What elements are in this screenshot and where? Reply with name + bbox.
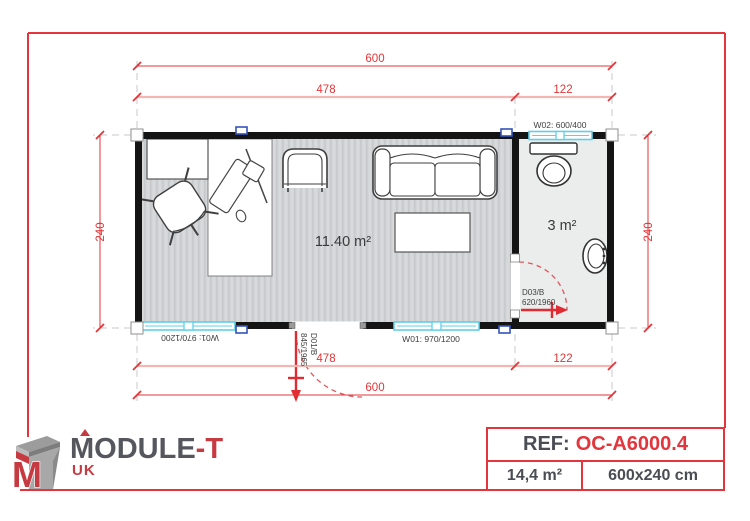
door-d03-jamb-top [511, 254, 520, 262]
partition-wall-upper [512, 132, 519, 262]
ref-label: REF: [523, 433, 570, 456]
unit-dimensions: 600x240 cm [583, 462, 723, 489]
brand-suffix: -T [196, 433, 223, 465]
door-d01-label: D01/B 845/1965 [299, 333, 318, 367]
door-d01-jamb-right [360, 323, 366, 329]
window-w01-right [394, 322, 479, 330]
door-d01-opening [292, 322, 363, 330]
brand-main: MODULE [70, 433, 196, 465]
armchair [283, 149, 327, 192]
door-d03-jamb-bottom [511, 310, 520, 318]
marker-bottom-right [499, 326, 510, 333]
left-wall [135, 132, 142, 329]
window-w01-left [142, 322, 235, 330]
dim-top-total: 600 [365, 53, 384, 65]
room-label-bathroom: 3 m² [548, 218, 577, 234]
door-d03-code: D03/B [522, 288, 544, 297]
window-w02 [529, 132, 592, 140]
door-d01-size: 845/1965 [299, 333, 308, 367]
dim-top-left: 478 [316, 84, 335, 96]
marker-top-right [501, 129, 512, 136]
right-wall [607, 132, 614, 329]
total-area: 14,4 m² [488, 462, 583, 489]
window-w01-right-label: W01: 970/1200 [402, 334, 460, 344]
door-d01-jamb-left [289, 323, 295, 329]
ref-row: REF: OC-A6000.4 [488, 429, 723, 460]
logo-chevron-icon [80, 429, 90, 436]
cabinet [147, 139, 208, 179]
door-d03-size: 620/1960 [522, 298, 556, 307]
spec-row: 14,4 m² 600x240 cm [488, 460, 723, 489]
room-label-office: 11.40 m² [315, 234, 371, 250]
window-w01-left-label: W01: 970/1200 [161, 333, 219, 343]
module-t-logo: M MODULE-T UK [12, 433, 223, 491]
door-d03-opening [511, 262, 520, 310]
dim-left-height: 240 [95, 222, 107, 241]
module-t-mark-icon: M [12, 433, 64, 491]
svg-text:M: M [12, 454, 42, 491]
ref-value: OC-A6000.4 [576, 433, 688, 456]
dim-right-height: 240 [643, 222, 655, 241]
dim-bottom-right: 122 [553, 353, 572, 365]
sink-icon [583, 239, 607, 273]
sofa [373, 146, 497, 199]
marker-bottom-left [236, 326, 247, 333]
marker-top-left [236, 127, 247, 134]
window-w02-label: W02: 600/400 [534, 120, 587, 130]
door-d01-code: D01/B [309, 333, 318, 355]
coffee-table [395, 213, 470, 252]
dim-top-right: 122 [553, 84, 572, 96]
dim-bottom-total: 600 [365, 382, 384, 394]
brand-name: MODULE-T [70, 435, 223, 464]
dim-bottom-left: 478 [316, 353, 335, 365]
ref-box: REF: OC-A6000.4 14,4 m² 600x240 cm [486, 427, 725, 491]
floorplan-drawing: 600 478 122 478 122 600 240 240 11.40 m²… [0, 0, 750, 516]
